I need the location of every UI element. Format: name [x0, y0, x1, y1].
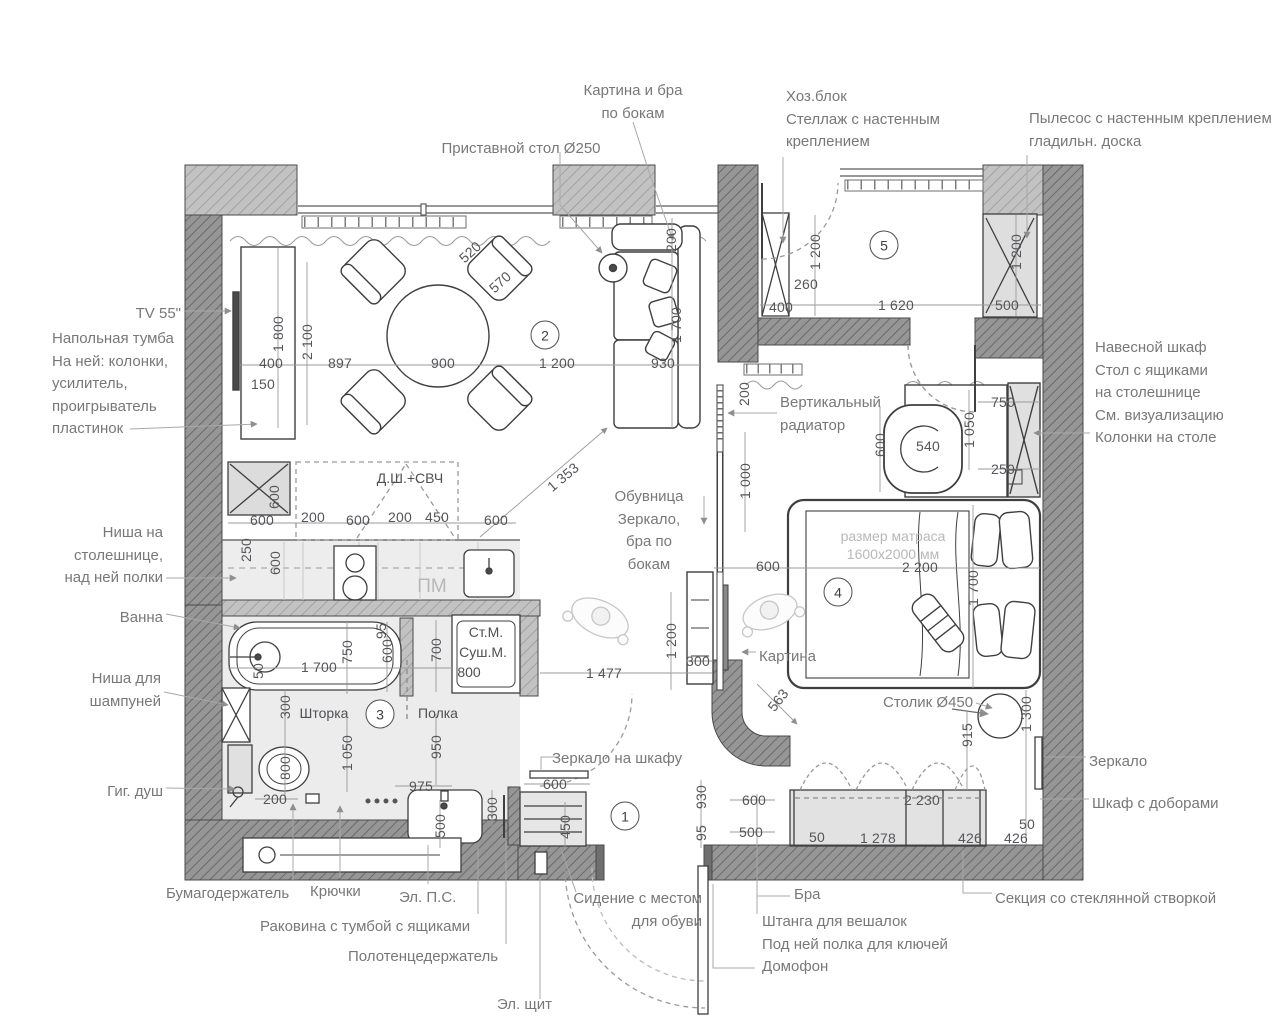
side-table-d450 [978, 694, 1022, 738]
mirror-on-cabinet [530, 771, 588, 778]
picture [723, 585, 728, 670]
floor-lamp [610, 265, 617, 272]
bed [788, 500, 1040, 688]
hall-mirror [718, 452, 723, 572]
hanging-clothes [800, 763, 985, 790]
wall-mirror [1035, 737, 1042, 789]
toilet-tank [228, 745, 252, 793]
dining-table [387, 285, 489, 387]
person-figure [561, 588, 639, 648]
upper-cabinets-dashed [296, 462, 458, 540]
dining-chair [339, 236, 410, 307]
living-room-furniture [233, 224, 700, 439]
entry-door-leaf [698, 866, 708, 1014]
washer-dryer [452, 615, 520, 693]
floor-plan-canvas: Картина и бра по бокамПриставной стол Ø2… [0, 0, 1280, 1030]
bedroom-furniture [687, 345, 1040, 690]
person-figures [561, 586, 806, 649]
hanging-chair [884, 405, 962, 493]
sofa [612, 224, 700, 428]
dining-chair [464, 364, 535, 435]
tv-stand [241, 247, 295, 439]
electrical-panel [535, 852, 547, 874]
entry-door-swing [565, 868, 705, 1008]
dining-chair [339, 366, 410, 437]
entry-furniture [520, 771, 708, 1014]
plan-drawing [0, 0, 1280, 1030]
tv-55 [233, 292, 239, 390]
paper-holder [306, 794, 319, 803]
